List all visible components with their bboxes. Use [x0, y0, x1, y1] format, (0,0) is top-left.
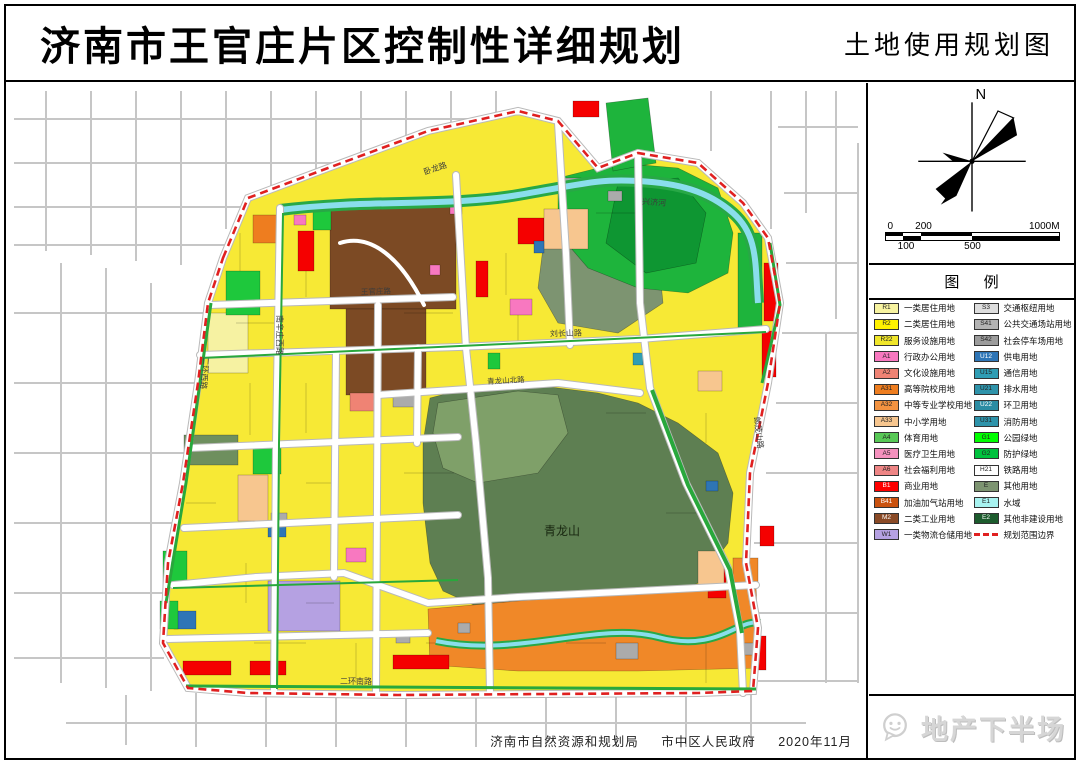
- legend-swatch: G1: [974, 432, 999, 443]
- scale-1000: 1000M: [1029, 221, 1060, 232]
- legend-label: 社会福利用地: [904, 464, 955, 476]
- scale-200: 200: [915, 221, 932, 232]
- legend-item: S41公共交通场站用地: [974, 319, 1074, 331]
- legend-item: U21排水用地: [974, 383, 1074, 395]
- landuse-map: 卧龙路兴济河南辛庄西路二环西路王官庄路刘长山路青龙山北路郎茂山路青龙山二环南路: [6, 83, 866, 757]
- legend-item: E其他用地: [974, 481, 1074, 493]
- legend-item: R1一类居住用地: [874, 303, 974, 315]
- legend-swatch: H21: [974, 465, 999, 476]
- legend-label: 一类居住用地: [904, 302, 955, 314]
- attribution-org1: 济南市自然资源和规划局: [490, 735, 639, 749]
- legend-boundary-swatch: [974, 533, 999, 536]
- legend-label: 通信用地: [1004, 367, 1038, 379]
- scale-bar-graphic: [885, 232, 1060, 241]
- legend-item: B41加油加气站用地: [874, 497, 974, 509]
- watermark-text: 地产下半场: [921, 708, 1066, 747]
- legend-item: G1公园绿地: [974, 432, 1074, 444]
- map-attribution: 济南市自然资源和规划局 市中区人民政府 2020年11月: [490, 731, 852, 750]
- legend-item: A4体育用地: [874, 432, 974, 444]
- scale-bar: 0 200 1000M 100 500: [885, 221, 1060, 259]
- attribution-date: 2020年11月: [778, 735, 852, 749]
- page: 济南市王官庄片区控制性详细规划 土地使用规划图: [0, 0, 1080, 764]
- legend-swatch: S41: [974, 319, 999, 330]
- legend-label: 其他用地: [1004, 480, 1038, 492]
- map-road-label: 南辛庄西路: [275, 315, 285, 355]
- scale-0: 0: [887, 221, 893, 232]
- compass: N: [869, 85, 1074, 217]
- scale-100: 100: [898, 241, 915, 252]
- legend-label: 消防用地: [1004, 416, 1038, 428]
- legend-swatch: B1: [874, 481, 899, 492]
- legend-item: W1一类物流仓储用地: [874, 529, 974, 541]
- legend-label: 加油加气站用地: [904, 497, 964, 509]
- north-label: N: [975, 86, 986, 102]
- legend-swatch: U22: [974, 400, 999, 411]
- legend-swatch: U15: [974, 368, 999, 379]
- legend-item: R22服务设施用地: [874, 335, 974, 347]
- legend-swatch: U31: [974, 416, 999, 427]
- legend-swatch: G2: [974, 448, 999, 459]
- legend-column-left: R1一类居住用地R2二类居住用地R22服务设施用地A1行政办公用地A2文化设施用…: [874, 303, 974, 546]
- legend-swatch: A5: [874, 448, 899, 459]
- legend-label: 交通枢纽用地: [1004, 302, 1055, 314]
- attribution-org2: 市中区人民政府: [661, 735, 756, 749]
- map-area: 卧龙路兴济河南辛庄西路二环西路王官庄路刘长山路青龙山北路郎茂山路青龙山二环南路 …: [6, 83, 868, 759]
- legend-label: 中等专业学校用地: [904, 399, 972, 411]
- legend-label: 高等院校用地: [904, 383, 955, 395]
- legend-item: G2防护绿地: [974, 448, 1074, 460]
- legend-column-right: S3交通枢纽用地S41公共交通场站用地S42社会停车场用地U12供电用地U15通…: [974, 303, 1074, 546]
- legend: R1一类居住用地R2二类居住用地R22服务设施用地A1行政办公用地A2文化设施用…: [874, 303, 1073, 546]
- legend-swatch: E: [974, 481, 999, 492]
- side-panel: N 0 200 1000M: [869, 83, 1074, 759]
- legend-swatch: R1: [874, 303, 899, 314]
- legend-swatch: E2: [974, 513, 999, 524]
- legend-label: 公共交通场站用地: [1004, 318, 1072, 330]
- legend-item: U22环卫用地: [974, 400, 1074, 412]
- legend-label: 社会停车场用地: [1004, 335, 1064, 347]
- legend-swatch: S42: [974, 335, 999, 346]
- legend-label: 排水用地: [1004, 383, 1038, 395]
- legend-label: 铁路用地: [1004, 464, 1038, 476]
- map-road-label: 二环南路: [340, 676, 372, 686]
- frame: 济南市王官庄片区控制性详细规划 土地使用规划图: [4, 4, 1076, 760]
- legend-item: S3交通枢纽用地: [974, 303, 1074, 315]
- watermark-logo: [877, 709, 913, 745]
- legend-item: U31消防用地: [974, 416, 1074, 428]
- legend-label: 行政办公用地: [904, 351, 955, 363]
- legend-swatch: A33: [874, 416, 899, 427]
- legend-label: 公园绿地: [1004, 432, 1038, 444]
- north-arrow: N: [907, 85, 1037, 215]
- legend-swatch: U21: [974, 384, 999, 395]
- map-road-label: 兴济河: [642, 196, 667, 208]
- legend-label: 一类物流仓储用地: [904, 529, 972, 541]
- legend-label: 中小学用地: [904, 416, 947, 428]
- legend-label: 环卫用地: [1004, 399, 1038, 411]
- title-bar: 济南市王官庄片区控制性详细规划 土地使用规划图: [6, 6, 1074, 82]
- legend-label: 二类居住用地: [904, 318, 955, 330]
- legend-item: M2二类工业用地: [874, 513, 974, 525]
- map-area-label: 青龙山: [544, 524, 580, 538]
- legend-swatch: A6: [874, 465, 899, 476]
- industrial-block: [330, 203, 456, 309]
- legend-swatch: B41: [874, 497, 899, 508]
- legend-item: A31高等院校用地: [874, 383, 974, 395]
- legend-item: A1行政办公用地: [874, 351, 974, 363]
- legend-swatch: U12: [974, 351, 999, 362]
- legend-item: A2文化设施用地: [874, 367, 974, 379]
- legend-swatch: S3: [974, 303, 999, 314]
- legend-swatch: A32: [874, 400, 899, 411]
- map-road-label: 青龙山北路: [487, 374, 525, 386]
- legend-swatch: A2: [874, 368, 899, 379]
- legend-swatch: A4: [874, 432, 899, 443]
- legend-swatch: A31: [874, 384, 899, 395]
- scale-500: 500: [964, 241, 981, 252]
- legend-item: A32中等专业学校用地: [874, 400, 974, 412]
- legend-label: 防护绿地: [1004, 448, 1038, 460]
- legend-label: 医疗卫生用地: [904, 448, 955, 460]
- map-road-label: 刘长山路: [550, 327, 582, 338]
- legend-item: A33中小学用地: [874, 416, 974, 428]
- legend-swatch: W1: [874, 529, 899, 540]
- legend-swatch: R2: [874, 319, 899, 330]
- page-subtitle: 土地使用规划图: [844, 25, 1054, 62]
- legend-item: B1商业用地: [874, 481, 974, 493]
- legend-label: 商业用地: [904, 480, 938, 492]
- legend-item: S42社会停车场用地: [974, 335, 1074, 347]
- legend-header: 图 例: [869, 263, 1074, 300]
- page-title: 济南市王官庄片区控制性详细规划: [40, 14, 685, 72]
- legend-item: A5医疗卫生用地: [874, 448, 974, 460]
- legend-item: U15通信用地: [974, 367, 1074, 379]
- legend-label: 其他非建设用地: [1004, 513, 1064, 525]
- legend-label: 服务设施用地: [904, 335, 955, 347]
- legend-item: H21铁路用地: [974, 464, 1074, 476]
- legend-label: 文化设施用地: [904, 367, 955, 379]
- legend-item: U12供电用地: [974, 351, 1074, 363]
- legend-item: E2其他非建设用地: [974, 513, 1074, 525]
- legend-item: E1水域: [974, 497, 1074, 509]
- map-road-label: 王官庄路: [361, 285, 392, 296]
- legend-swatch: A1: [874, 351, 899, 362]
- legend-swatch: M2: [874, 513, 899, 524]
- legend-item: A6社会福利用地: [874, 464, 974, 476]
- legend-item: R2二类居住用地: [874, 319, 974, 331]
- legend-swatch: R22: [874, 335, 899, 346]
- legend-swatch: E1: [974, 497, 999, 508]
- legend-label: 规划范围边界: [1004, 529, 1055, 541]
- legend-label: 体育用地: [904, 432, 938, 444]
- legend-item: 规划范围边界: [974, 529, 1074, 541]
- watermark: 地产下半场: [869, 694, 1074, 758]
- legend-label: 供电用地: [1004, 351, 1038, 363]
- legend-label: 二类工业用地: [904, 513, 955, 525]
- legend-label: 水域: [1004, 497, 1021, 509]
